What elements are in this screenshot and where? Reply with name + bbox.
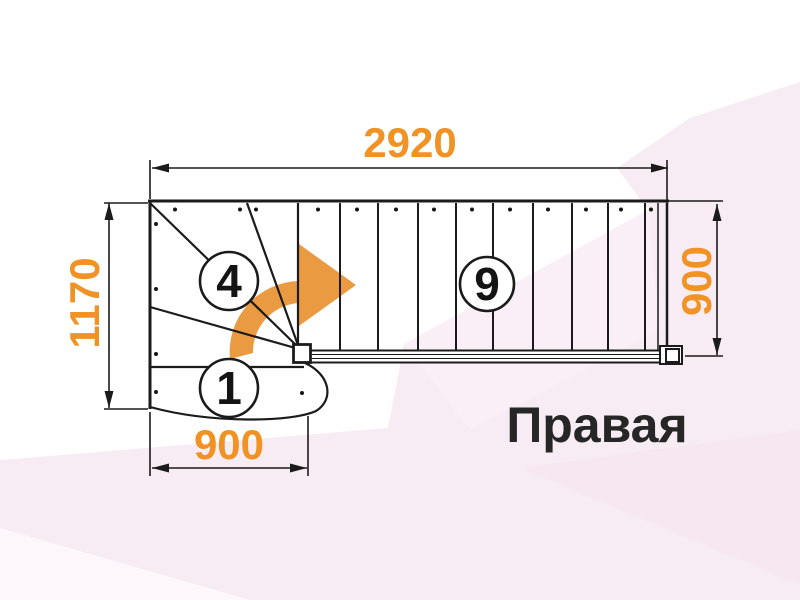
staircase-plan-drawing: 2920 1170 900 900 4 1 9 П bbox=[0, 0, 800, 600]
step-number-first: 1 bbox=[216, 362, 242, 414]
dim-arrow-left bbox=[152, 164, 169, 173]
step-badge-straight: 9 bbox=[460, 257, 514, 311]
dimension-bottom-value: 900 bbox=[194, 421, 264, 468]
dimension-left-value: 1170 bbox=[61, 257, 108, 348]
step-badge-first: 1 bbox=[200, 359, 258, 417]
dimension-right-value: 900 bbox=[673, 246, 720, 316]
staircase-plan-canvas: 2920 1170 900 900 4 1 9 П bbox=[0, 0, 800, 600]
newel-post-center bbox=[294, 345, 311, 363]
dimension-top-value: 2920 bbox=[363, 119, 456, 166]
step-number-winder: 4 bbox=[216, 255, 242, 307]
handrail bbox=[310, 351, 662, 363]
dimension-top: 2920 bbox=[150, 119, 668, 237]
dim-arrow-down bbox=[105, 391, 114, 408]
dimension-left: 1170 bbox=[61, 203, 148, 409]
orientation-label: Правая bbox=[506, 397, 687, 453]
step-number-straight: 9 bbox=[474, 258, 500, 310]
dim-arrow-up bbox=[105, 203, 114, 220]
newel-post-right bbox=[660, 346, 682, 364]
step-badge-winder: 4 bbox=[200, 252, 258, 310]
